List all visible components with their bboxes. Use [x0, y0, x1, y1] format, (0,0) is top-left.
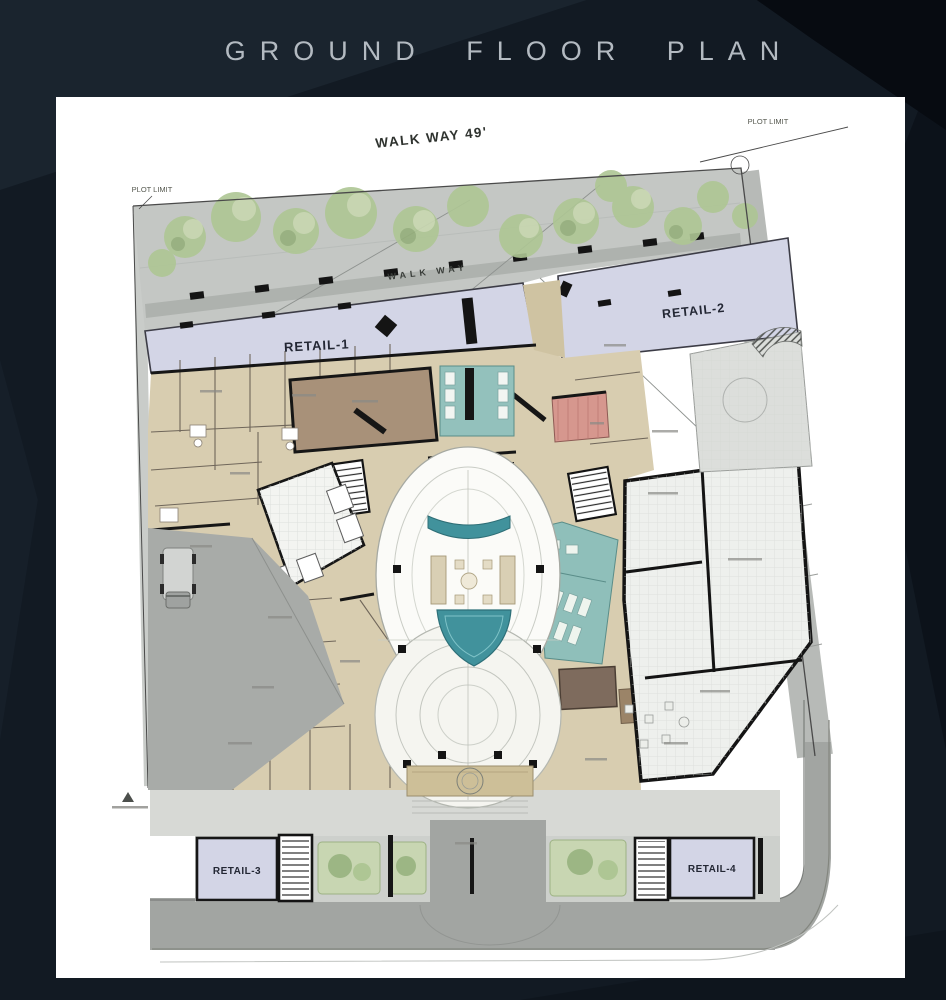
retail-4-label: RETAIL-4 [688, 864, 736, 875]
right-service-rooms [624, 457, 811, 781]
stair-retail-4 [635, 838, 668, 900]
electrical-room [552, 392, 609, 442]
plot-limit-label-left: PLOT LIMIT [132, 185, 173, 194]
floor-plan-drawing: WALK WAY 49' PLOT LIMIT PLOT LIMIT WALK … [56, 97, 905, 978]
services-arrow [112, 792, 148, 809]
page-title: GROUND FLOOR PLAN [0, 36, 946, 67]
walkway-49-label: WALK WAY 49' [375, 124, 489, 151]
central-atrium [375, 447, 561, 813]
plot-limit-label-right: PLOT LIMIT [748, 117, 789, 126]
washroom-top [440, 366, 514, 436]
retail-3-label: RETAIL-3 [213, 866, 261, 877]
stair-retail-3 [279, 835, 312, 901]
service-truck [160, 548, 196, 608]
paved-plaza [690, 327, 812, 472]
floor-plan-panel: WALK WAY 49' PLOT LIMIT PLOT LIMIT WALK … [56, 97, 905, 978]
